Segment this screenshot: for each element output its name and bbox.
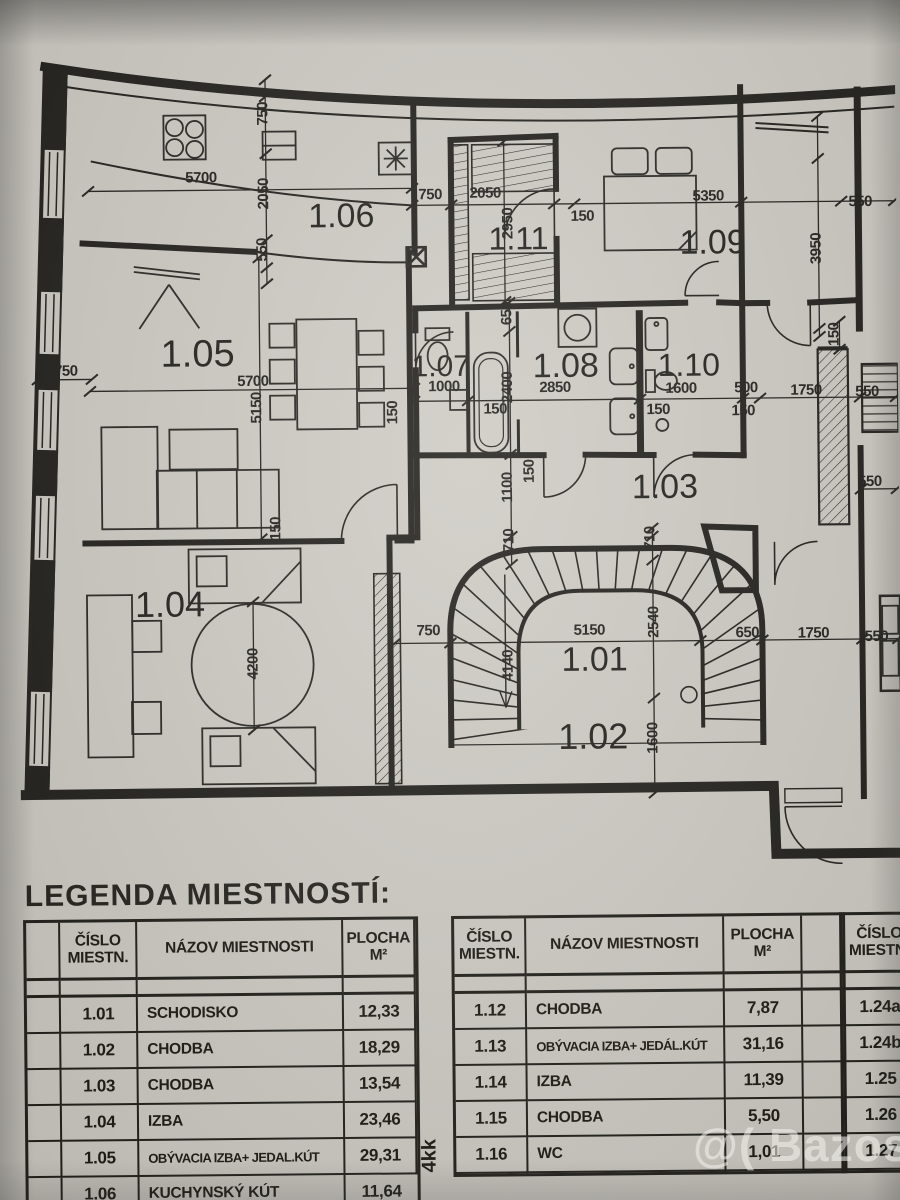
legend-cell: 1.01 — [61, 997, 138, 1034]
legend-cell: 1.15 — [456, 1101, 528, 1138]
legend-cell: IZBA — [139, 1103, 345, 1141]
dim-label: 2050 — [469, 184, 501, 201]
dim-label: 1750 — [790, 381, 822, 398]
dim-label: 5350 — [692, 187, 724, 204]
dining-table-icon — [269, 319, 384, 430]
dim-label: 750 — [54, 363, 78, 380]
legend-cell: 13,54 — [344, 1066, 416, 1103]
legend-cell — [455, 976, 527, 994]
legend-cell: NÁZOV MIESTNOSTI — [526, 916, 725, 976]
legend-cell — [27, 981, 61, 998]
legend-cell — [27, 998, 61, 1034]
legend-cell — [802, 915, 843, 973]
snowflake-icon — [379, 142, 413, 174]
legend-cell: 1.14 — [455, 1065, 527, 1102]
dim-label: 150 — [646, 401, 670, 418]
dim-label: 150 — [570, 208, 594, 225]
dim-label: 2050 — [255, 178, 272, 210]
legend-cell: OBÝVACIA IZBA+ JEDAL.KÚT — [139, 1139, 345, 1177]
room-label: 1.04 — [135, 583, 205, 625]
room-label: 1.06 — [308, 197, 375, 236]
floorplan-photo: 1.061.111.091.051.071.081.101.031.041.01… — [0, 0, 900, 1200]
legend-cell: 1.24a — [843, 990, 900, 1027]
legend-cell: 1.04 — [62, 1105, 139, 1142]
dim-label: 710 — [641, 526, 658, 550]
dim-label: 2540 — [645, 606, 662, 638]
legend-cell — [29, 1178, 63, 1200]
legend-cell: 29,31 — [345, 1138, 417, 1175]
legend-cell — [843, 973, 900, 991]
legend-cell: 23,46 — [345, 1102, 417, 1139]
legend-cell: CHODBA — [138, 1031, 344, 1069]
legend-cell: CHODBA — [527, 991, 725, 1029]
legend-cell: OBÝVACIA IZBA+ JEDÁL.KÚT — [527, 1027, 725, 1065]
legend-cell — [61, 980, 138, 998]
legend-cell: IZBA — [527, 1063, 725, 1101]
watermark: @( Bazos.sk — [693, 1118, 900, 1172]
dim-label: 550 — [848, 193, 872, 210]
dim-label: 650 — [735, 624, 759, 641]
room-label: 1.09 — [679, 223, 746, 262]
dim-label: 150 — [521, 459, 538, 483]
legend-cell — [803, 973, 843, 990]
room-label: 1.01 — [561, 640, 628, 679]
dim-label: 1000 — [428, 378, 460, 395]
stove-icon — [163, 115, 205, 159]
dim-label: 150 — [825, 322, 842, 346]
dim-label: 3950 — [807, 233, 824, 265]
dim-label: 5150 — [248, 392, 265, 424]
legend-cell: 1.13 — [455, 1029, 527, 1066]
legend-cell: 1.24b — [843, 1026, 900, 1063]
dim-label: 150 — [731, 402, 755, 419]
legend-cell — [527, 974, 725, 993]
dim-label: 650 — [498, 301, 515, 325]
legend-cell — [803, 1026, 843, 1062]
legend-cell: 12,33 — [344, 994, 416, 1031]
legend-cell: 1.25 — [843, 1062, 900, 1099]
dim-label: 1600 — [644, 722, 661, 754]
sofa-icon — [101, 426, 279, 530]
dim-label: 1600 — [665, 380, 697, 397]
legend-title: LEGENDA MIESTNOSTÍ: — [25, 877, 392, 915]
room-label: 1.10 — [657, 346, 720, 383]
legend-cell: 1.16 — [456, 1137, 528, 1174]
wardrobe-hatch — [453, 145, 469, 300]
legend-cell: NÁZOV MIESTNOSTI — [137, 920, 344, 980]
layout-note: 4kk — [418, 1139, 441, 1173]
legend-cell: 1.12 — [455, 993, 527, 1030]
dim-label: 2400 — [499, 372, 516, 404]
legend-cell: 7,87 — [725, 991, 803, 1028]
tv-icon — [134, 266, 201, 329]
legend-cell: 1.05 — [62, 1141, 139, 1178]
dim-label: 5700 — [185, 169, 217, 186]
washing-machine-icon — [558, 309, 596, 347]
legend-cell: PLOCHAM² — [343, 919, 416, 978]
dim-label: 5700 — [237, 373, 269, 390]
dim-label: 4200 — [244, 648, 261, 680]
legend-cell — [27, 1034, 61, 1070]
legend-cell — [26, 923, 61, 981]
photo-tilt-wrapper: 1.061.111.091.051.071.081.101.031.041.01… — [0, 0, 900, 1200]
dim-label: 550 — [855, 383, 879, 400]
legend-table-1: ČÍSLOMIESTN.NÁZOV MIESTNOSTIPLOCHAM²1.01… — [23, 916, 421, 1200]
dim-label: 550 — [865, 628, 889, 645]
legend-cell: 1.03 — [61, 1069, 138, 1106]
room-label: 1.02 — [558, 715, 628, 757]
legend-cell: CHODBA — [138, 1067, 344, 1105]
staircase — [370, 480, 842, 752]
legend-cell: SCHODISKO — [138, 995, 344, 1033]
room-label: 1.03 — [632, 468, 699, 507]
dim-label: 1100 — [499, 472, 516, 503]
dim-label: 750 — [418, 186, 442, 203]
dim-label: 5150 — [574, 622, 606, 639]
legend-cell: ČÍSLOMIESTN. — [454, 918, 527, 977]
dim-label: 710 — [500, 528, 517, 552]
floor-plan: 1.061.111.091.051.071.081.101.031.041.01… — [0, 0, 900, 884]
legend-cell: 1.02 — [61, 1033, 138, 1070]
dim-label: 550 — [254, 238, 271, 262]
dim-label: 500 — [734, 379, 758, 396]
floor-plan-drawing: 1.061.111.091.051.071.081.101.031.041.01… — [0, 0, 900, 884]
legend-cell — [28, 1142, 62, 1178]
legend-cell: ČÍSLOMIESTN. — [60, 922, 138, 981]
room-label: 1.05 — [160, 333, 234, 376]
dim-label: 150 — [483, 400, 507, 417]
dim-label: 2950 — [499, 208, 516, 240]
legend-cell: KUCHYNSKÝ KÚT — [140, 1175, 346, 1200]
radiator-hatch — [374, 573, 402, 783]
legend-cell: 1.06 — [63, 1177, 140, 1200]
legend-cell: 18,29 — [344, 1030, 416, 1067]
dim-label: 150 — [267, 517, 284, 541]
legend-cell: PLOCHAM² — [724, 916, 803, 975]
legend-cell: 11,64 — [346, 1174, 418, 1200]
legend-cell — [344, 977, 416, 995]
dim-label: 4140 — [499, 650, 516, 682]
room-label: 1.11 — [488, 220, 548, 257]
dim-label: 2850 — [539, 379, 571, 396]
dim-label: 750 — [254, 102, 271, 126]
dim-label: 750 — [416, 622, 440, 639]
legend-cell — [27, 1070, 61, 1106]
legend-cell — [803, 990, 843, 1026]
furniture — [82, 109, 899, 786]
left-facade-wall — [25, 66, 67, 796]
legend-cell — [28, 1106, 62, 1142]
dim-label: 150 — [384, 401, 401, 425]
legend-cell — [803, 1062, 843, 1098]
legend-cell — [138, 978, 344, 997]
dim-label: 1750 — [798, 624, 830, 641]
dim-label: 550 — [858, 473, 882, 490]
sink-icon — [610, 348, 639, 434]
legend-cell: 11,39 — [725, 1063, 803, 1100]
legend-cell — [725, 974, 803, 992]
legend-cell: 31,16 — [725, 1027, 803, 1064]
legend-cell: ČÍSLOMIESTN. — [842, 915, 900, 974]
